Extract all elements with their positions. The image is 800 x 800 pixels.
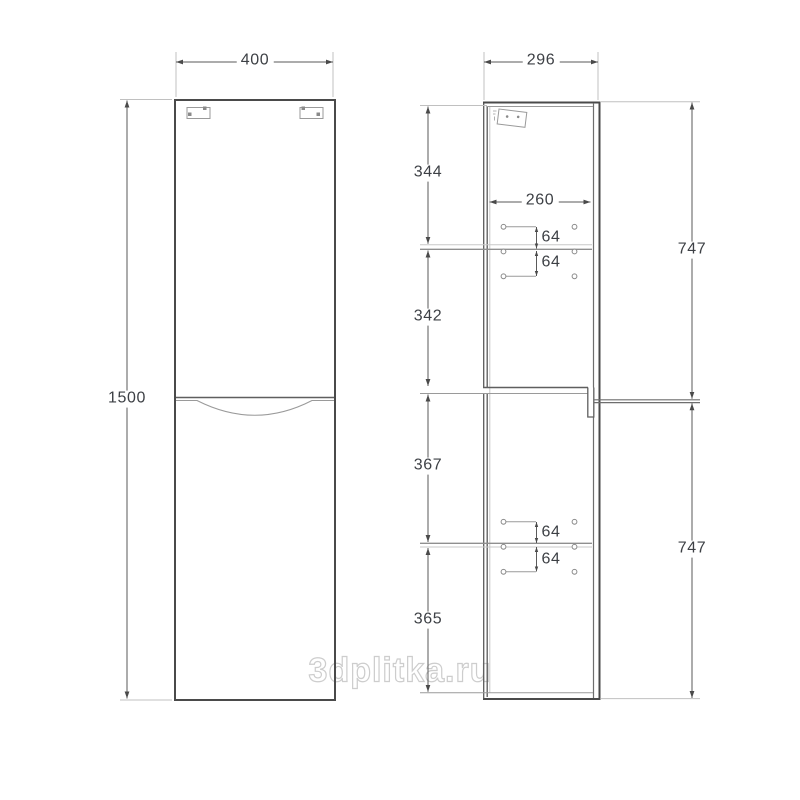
shelf-pin-holes <box>501 224 577 574</box>
front-cabinet-outline <box>175 100 335 700</box>
middle-divider <box>420 388 700 418</box>
cabinet-technical-drawing: 3dplitka.ru <box>0 0 800 800</box>
front-door-divider <box>176 398 334 416</box>
dim-side-depth: 296 <box>523 53 560 70</box>
dim-pin-spacing-4: 64 <box>540 552 563 569</box>
curved-handle-recess <box>176 401 334 416</box>
dim-section-second: 342 <box>410 309 447 326</box>
bracket-size-mark <box>493 111 497 121</box>
side-hanging-bracket <box>493 109 527 127</box>
dim-front-height: 1500 <box>104 391 150 408</box>
dim-pin-spacing-2: 64 <box>540 255 563 272</box>
side-view <box>420 52 700 700</box>
dim-upper-door: 747 <box>674 242 711 259</box>
dim-section-bottom: 365 <box>410 612 447 629</box>
shelves <box>420 106 593 693</box>
dim-section-third: 367 <box>410 458 447 475</box>
dim-inner-depth: 260 <box>522 193 559 210</box>
dim-pin-spacing-1: 64 <box>540 230 563 247</box>
front-dimension-lines <box>120 52 333 700</box>
front-view <box>120 52 335 700</box>
divider-notch <box>588 388 594 418</box>
dim-front-width: 400 <box>237 53 274 70</box>
dim-lower-door: 747 <box>674 541 711 558</box>
dim-pin-spacing-3: 64 <box>540 525 563 542</box>
side-dimension-lines <box>428 52 700 699</box>
wall-mount-brackets <box>187 107 323 119</box>
dim-section-top: 344 <box>410 165 447 182</box>
